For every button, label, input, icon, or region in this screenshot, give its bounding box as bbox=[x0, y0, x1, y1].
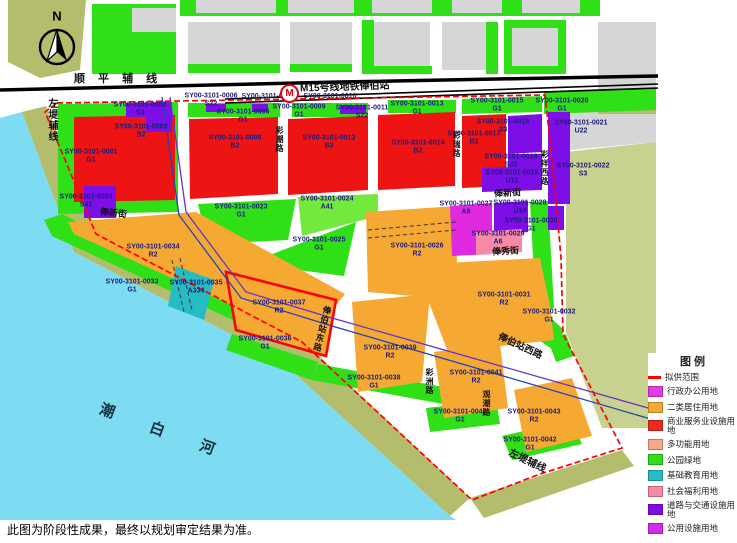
offsite-olive-right bbox=[566, 142, 656, 428]
parcel-label-0038: SY00-3101-0038G1 bbox=[348, 374, 401, 389]
legend-swatch-residential bbox=[648, 402, 663, 413]
parcel-label-0039: SY00-3101-0039R2 bbox=[364, 344, 417, 359]
legend-item: 道路与交通设施用地 bbox=[648, 501, 737, 518]
legend-swatch-utility bbox=[648, 523, 663, 534]
legend-item: 拟供范围 bbox=[648, 373, 737, 382]
legend-panel: 图 例 拟供范围 行政办公用地 二类居住用地 商业服务业设施用地 多功能用地 公… bbox=[648, 353, 737, 538]
parcel-label-0002: SY00-3101-0002S3 bbox=[114, 101, 167, 116]
parcel-label-0008: SY00-3101-0008B2 bbox=[209, 134, 262, 149]
parcel-label-0011: SY00-3101-0011S22 bbox=[336, 104, 389, 119]
road-caichao-label: 彩潮路 bbox=[274, 126, 285, 153]
road-zuodi-left-label: 左堤辅线 bbox=[44, 98, 59, 142]
parcel-label-0012: SY00-3101-0012B2 bbox=[303, 134, 356, 149]
road-caixiang-label: 彩祥西路 bbox=[539, 150, 550, 186]
block-gray-notch bbox=[132, 8, 176, 32]
parcel-label-0026: SY00-3101-0026R2 bbox=[391, 242, 444, 257]
parcel-label-0019: SY00-3101-0019U12 bbox=[486, 169, 539, 184]
legend-swatch-admin bbox=[648, 386, 663, 397]
block-gray-6 bbox=[512, 28, 558, 66]
parcel-label-0035: SY00-3101-0035A334 bbox=[170, 279, 223, 294]
planning-map: N 顺 平 辅 线 M M15号线地铁俸伯站 左堤辅线 彩潮路 彩瑞路 彩祥西路… bbox=[0, 0, 737, 543]
legend-item: 商业服务业设施用地 bbox=[648, 417, 737, 434]
legend-swatch-multifunction bbox=[648, 439, 663, 450]
block-gray-4 bbox=[374, 22, 430, 70]
parcel-label-0022: SY00-3101-0022S3 bbox=[557, 162, 610, 177]
parcel-label-0033: SY00-3101-0033G1 bbox=[106, 278, 159, 293]
parcel-label-0025: SY00-3101-0025G1 bbox=[293, 236, 346, 251]
parcel-label-0043: SY00-3101-0043R2 bbox=[508, 408, 561, 423]
parcel-label-0009: SY00-3101-0009G1 bbox=[273, 103, 326, 118]
parcel-0008-shape bbox=[189, 117, 278, 199]
road-shunping-label: 顺 平 辅 线 bbox=[74, 70, 162, 86]
parcel-label-0020: SY00-3101-0020G1 bbox=[536, 97, 589, 112]
north-label: N bbox=[52, 9, 61, 24]
parcel-label-0023: SY00-3101-0023G1 bbox=[215, 203, 268, 218]
parcel-label-0021: SY00-3101-0021U22 bbox=[555, 119, 608, 134]
metro-station-label: M15号线地铁俸伯站 bbox=[300, 76, 390, 94]
parcel-label-0006: SY00-3101-0006S22 bbox=[185, 92, 238, 107]
parcel-label-0001: SY00-3101-0001G1 bbox=[65, 148, 118, 163]
legend-swatch-park bbox=[648, 454, 663, 465]
parcel-label-0037: SY00-3101-0037R2 bbox=[253, 299, 306, 314]
block-green-4b bbox=[362, 66, 432, 74]
top-block bbox=[522, 0, 580, 13]
parcel-label-0018: SY00-3101-0018S42 bbox=[485, 153, 538, 168]
parcel-label-0024: SY00-3101-0024A41 bbox=[301, 195, 354, 210]
legend-item: 公用设施用地 bbox=[648, 523, 737, 534]
road-cairui-label: 彩瑞路 bbox=[451, 131, 462, 158]
disclaimer-note: 此图为阶段性成果，最终以规划审定结果为准。 bbox=[7, 521, 259, 538]
block-green-4a bbox=[362, 20, 374, 74]
legend-swatch-transport bbox=[648, 504, 663, 515]
legend-item: 社会福利用地 bbox=[648, 486, 737, 497]
parcel-label-0003: SY00-3101-0003B2 bbox=[115, 123, 168, 138]
road-fengxin-e-label: 俸新街 bbox=[494, 185, 522, 200]
parcel-label-0013: SY00-3101-0013G1 bbox=[391, 100, 444, 115]
metro-badge-icon: M bbox=[280, 84, 299, 103]
top-block bbox=[452, 0, 502, 13]
legend-swatch-boundary bbox=[648, 376, 661, 379]
road-fengxiu-label: 俸秀街 bbox=[492, 243, 520, 257]
top-block bbox=[288, 0, 354, 13]
parcel-label-0014: SY00-3101-0014B2 bbox=[392, 139, 445, 154]
block-gray-5 bbox=[442, 22, 486, 70]
parcel-label-0010: SY00-3101-0010 bbox=[304, 93, 357, 101]
road-fengxin-w-label: 俸新街 bbox=[99, 205, 127, 221]
parcel-label-0030: SY00-3101-0030G1 bbox=[505, 217, 558, 232]
parcel-0012-shape bbox=[288, 116, 368, 195]
parcel-label-0032: SY00-3101-0032G1 bbox=[523, 308, 576, 323]
top-block bbox=[372, 0, 432, 13]
legend-swatch-education bbox=[648, 470, 663, 481]
parcel-label-0031: SY00-3101-0031R2 bbox=[478, 291, 531, 306]
block-gray-2 bbox=[188, 22, 280, 66]
block-green-5b bbox=[486, 22, 498, 74]
parcel-label-0015: SY00-3101-0015G1 bbox=[471, 97, 524, 112]
legend-item: 多功能用地 bbox=[648, 439, 737, 450]
north-plate-shape bbox=[8, 0, 86, 78]
legend-swatch-welfare bbox=[648, 486, 663, 497]
parcel-label-0041: SY00-3101-0041R2 bbox=[450, 369, 503, 384]
legend-title: 图 例 bbox=[648, 353, 737, 369]
block-gray-3 bbox=[290, 22, 352, 66]
parcel-label-0028: SY00-3101-0028U14 bbox=[494, 199, 547, 214]
legend-item: 公园绿地 bbox=[648, 454, 737, 465]
road-caizhou-label: 彩洲路 bbox=[424, 368, 435, 395]
legend-item: 基础教育用地 bbox=[648, 470, 737, 481]
parcel-label-0036: SY00-3101-0036G1 bbox=[239, 335, 292, 350]
legend-item: 行政办公用地 bbox=[648, 386, 737, 397]
top-block bbox=[196, 0, 276, 13]
legend-item: 二类居住用地 bbox=[648, 402, 737, 413]
block-green-3b bbox=[290, 64, 352, 72]
road-guanchao-label: 观潮路 bbox=[481, 390, 492, 417]
parcel-label-0027: SY00-3101-0027A8 bbox=[440, 200, 493, 215]
parcel-label-0005: SY00-3101-0005G1 bbox=[217, 108, 270, 123]
block-green-2b bbox=[188, 64, 280, 73]
legend-swatch-commercial bbox=[648, 420, 663, 431]
parcel-label-0034: SY00-3101-0034R2 bbox=[127, 243, 180, 258]
parcel-label-0040: SY00-3101-0040G1 bbox=[434, 408, 487, 423]
embankment-band2-shape bbox=[470, 450, 634, 518]
